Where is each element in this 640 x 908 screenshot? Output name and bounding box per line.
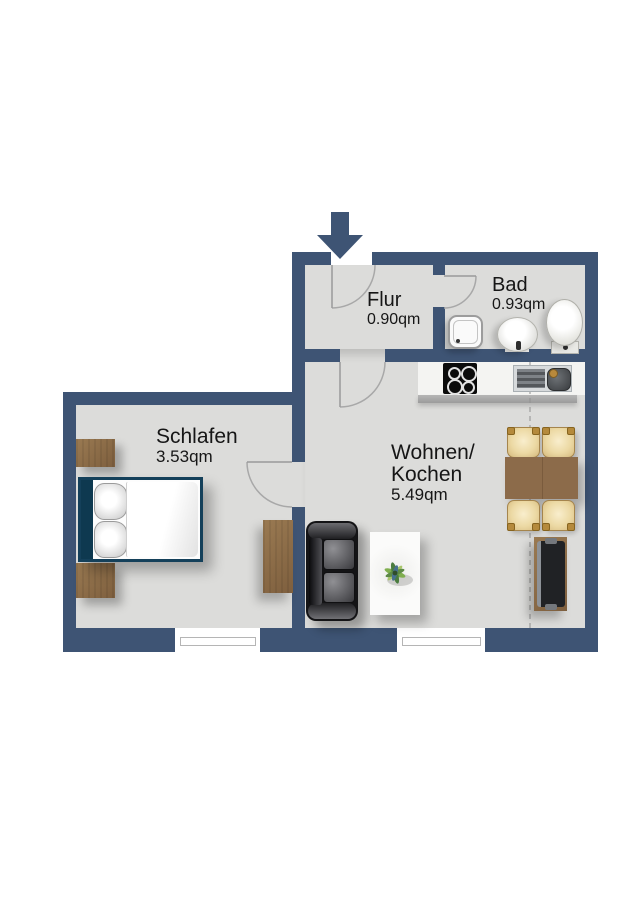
kitchen-sink-icon xyxy=(513,365,572,392)
kitchen-counter-edge xyxy=(418,395,577,403)
living-window-frame xyxy=(402,637,481,646)
plant-icon xyxy=(373,552,417,596)
room-label-flur: Flur 0.90qm xyxy=(367,290,420,329)
wall-hallway-left xyxy=(292,252,305,362)
nightstand xyxy=(76,439,115,467)
wall-bedroom-divider-bottom xyxy=(292,507,305,628)
room-area-schlafen: 3.53qm xyxy=(156,448,238,467)
room-area-bad: 0.93qm xyxy=(492,296,545,314)
dresser xyxy=(263,520,293,593)
sink-drainboard xyxy=(517,369,545,388)
washbasin-icon xyxy=(497,317,538,352)
room-name-bad: Bad xyxy=(492,275,545,296)
tv-icon xyxy=(537,541,565,607)
wall-bedroom-top xyxy=(63,392,305,405)
room-area-flur: 0.90qm xyxy=(367,311,420,329)
room-name-flur: Flur xyxy=(367,290,420,311)
wall-hallway-bottom-left xyxy=(305,349,340,362)
room-label-wohnen: Wohnen/ Kochen 5.49qm xyxy=(391,442,475,505)
pillow xyxy=(94,521,127,558)
room-name-wohnen-2: Kochen xyxy=(391,464,475,486)
dining-chair xyxy=(542,427,575,458)
nightstand xyxy=(76,563,115,598)
duvet xyxy=(126,482,198,557)
cooktop-icon xyxy=(443,363,477,394)
wall-bottom-left xyxy=(63,628,175,652)
bed-headboard xyxy=(81,480,93,559)
wall-bottom-middle xyxy=(260,628,397,652)
wall-bottom-right xyxy=(485,628,598,652)
room-name-wohnen-1: Wohnen/ xyxy=(391,442,475,464)
dining-chair xyxy=(507,500,540,531)
floor-plan: Flur 0.90qm Bad 0.93qm Schlafen 3.53qm W… xyxy=(0,0,640,908)
wall-bath-left xyxy=(433,307,445,349)
dining-chair xyxy=(507,427,540,458)
room-label-schlafen: Schlafen 3.53qm xyxy=(156,426,238,467)
room-area-wohnen: 5.49qm xyxy=(391,486,475,505)
wall-left xyxy=(63,392,76,652)
sofa-icon xyxy=(306,521,358,621)
entrance-arrow-icon xyxy=(331,212,349,236)
pillow xyxy=(94,483,127,520)
bed-icon xyxy=(78,477,203,562)
wall-top-right xyxy=(372,252,598,265)
entrance-arrow-head-icon xyxy=(317,235,363,259)
wall-bedroom-divider-top xyxy=(292,362,305,462)
bedroom-window-frame xyxy=(180,637,256,646)
sink-faucet xyxy=(549,369,558,378)
toilet-icon xyxy=(546,299,583,346)
room-label-bad: Bad 0.93qm xyxy=(492,275,545,314)
room-name-schlafen: Schlafen xyxy=(156,426,238,448)
dining-table xyxy=(505,457,578,499)
coffee-table xyxy=(370,532,420,615)
wall-bath-door-stub xyxy=(433,265,445,275)
shower-tray-icon xyxy=(448,315,483,349)
dining-chair xyxy=(542,500,575,531)
wall-right xyxy=(585,252,598,652)
